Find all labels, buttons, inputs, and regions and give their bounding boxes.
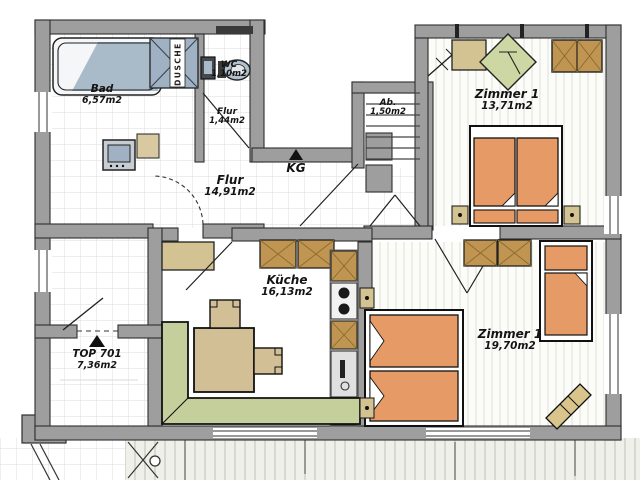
window-right-1 bbox=[604, 196, 623, 234]
door-pivot bbox=[150, 456, 160, 466]
room-area: 14,91m2 bbox=[204, 187, 255, 199]
stove-burner bbox=[339, 304, 350, 315]
nightstand-knob bbox=[570, 213, 574, 217]
wall-bedroom-divider bbox=[500, 226, 621, 239]
wall-bedroom1-left bbox=[415, 38, 428, 228]
mattress bbox=[517, 138, 558, 206]
sideboard bbox=[162, 242, 214, 270]
path-tiles bbox=[0, 438, 125, 480]
window-right-2 bbox=[604, 314, 623, 394]
wall-top-right bbox=[415, 25, 621, 38]
basement-label: KG bbox=[286, 161, 305, 175]
window-left-1 bbox=[33, 92, 52, 132]
room-area: 1,44m2 bbox=[209, 117, 245, 127]
corridor-floor-tiles bbox=[50, 228, 148, 340]
duvet bbox=[517, 210, 558, 223]
wall-bath-bottom-left bbox=[35, 224, 153, 238]
room-label-zimmer1-bottom: Zimmer 1 19,70m2 bbox=[478, 328, 542, 353]
wall-kitchen-top-stub bbox=[162, 228, 178, 241]
room-area: 6,57m2 bbox=[82, 96, 122, 107]
dining-table bbox=[194, 328, 254, 392]
room-label-bad: Bad 6,57m2 bbox=[82, 84, 122, 106]
single-bed-mattress bbox=[545, 273, 587, 335]
mattress bbox=[474, 138, 515, 206]
wall-stairs-left bbox=[352, 82, 364, 168]
washbasin-knob bbox=[122, 165, 124, 167]
washbasin-knob bbox=[110, 165, 112, 167]
stove-burner bbox=[339, 288, 350, 299]
room-name: Zimmer 1 bbox=[478, 328, 542, 341]
room-label-ab: Ab. 1,50m2 bbox=[370, 98, 406, 118]
floor-plan-drawing bbox=[0, 0, 640, 480]
wall-entry-top-right bbox=[118, 325, 162, 338]
duvet bbox=[474, 210, 515, 223]
wall-hall-bedroom bbox=[364, 226, 432, 239]
window-left-2 bbox=[33, 250, 52, 292]
room-label-flur-small: Flur 1,44m2 bbox=[209, 107, 245, 127]
room-label-flur-main: Flur 14,91m2 bbox=[204, 174, 255, 199]
wall-kitchen-top bbox=[232, 228, 372, 241]
wall-tick bbox=[520, 24, 524, 38]
wall-tick bbox=[455, 24, 459, 38]
wall-bottom bbox=[35, 426, 621, 440]
terrace bbox=[125, 438, 640, 480]
wall-wc-right bbox=[250, 20, 264, 162]
chair bbox=[210, 300, 240, 328]
room-label-kueche: Küche 16,13m2 bbox=[261, 274, 312, 299]
dresser bbox=[452, 40, 486, 70]
room-label-zimmer1-top: Zimmer 1 13,71m2 bbox=[475, 88, 539, 113]
room-label-wc: WC 1,10m2 bbox=[211, 60, 247, 80]
nightstand-knob bbox=[365, 406, 369, 410]
terrace-planks bbox=[125, 438, 640, 480]
wall-dark-band bbox=[216, 26, 253, 34]
room-name: Küche bbox=[261, 274, 312, 287]
room-label-top701: TOP 701 7,36m2 bbox=[72, 349, 121, 371]
bath-cabinet bbox=[137, 134, 159, 158]
nightstand-knob bbox=[365, 296, 369, 300]
single-bed-pillow bbox=[545, 246, 587, 270]
room-area: 13,71m2 bbox=[475, 101, 539, 113]
room-name: Zimmer 1 bbox=[475, 88, 539, 101]
chair bbox=[254, 348, 282, 374]
room-name: TOP 701 bbox=[72, 349, 121, 361]
room-area: 16,13m2 bbox=[261, 287, 312, 299]
room-area: 7,36m2 bbox=[72, 361, 121, 372]
washbasin-knob bbox=[116, 165, 118, 167]
room-name: Bad bbox=[82, 84, 122, 96]
wall-entry-top-left bbox=[35, 325, 77, 338]
shaft-block bbox=[366, 165, 392, 192]
room-name: Flur bbox=[204, 174, 255, 187]
nightstand-knob bbox=[458, 213, 462, 217]
room-area: 19,70m2 bbox=[478, 341, 542, 353]
washbasin-bowl bbox=[108, 145, 130, 162]
room-area: 1,50m2 bbox=[370, 108, 406, 118]
shower-label: DUSCHE bbox=[174, 42, 183, 86]
wall-hall-top bbox=[252, 148, 364, 162]
wall-tick bbox=[585, 24, 589, 38]
room-area: 1,10m2 bbox=[211, 70, 247, 80]
floor-plan: Bad 6,57m2 WC 1,10m2 Flur 1,44m2 Ab. 1,5… bbox=[0, 0, 640, 480]
sink-faucet bbox=[340, 360, 345, 378]
